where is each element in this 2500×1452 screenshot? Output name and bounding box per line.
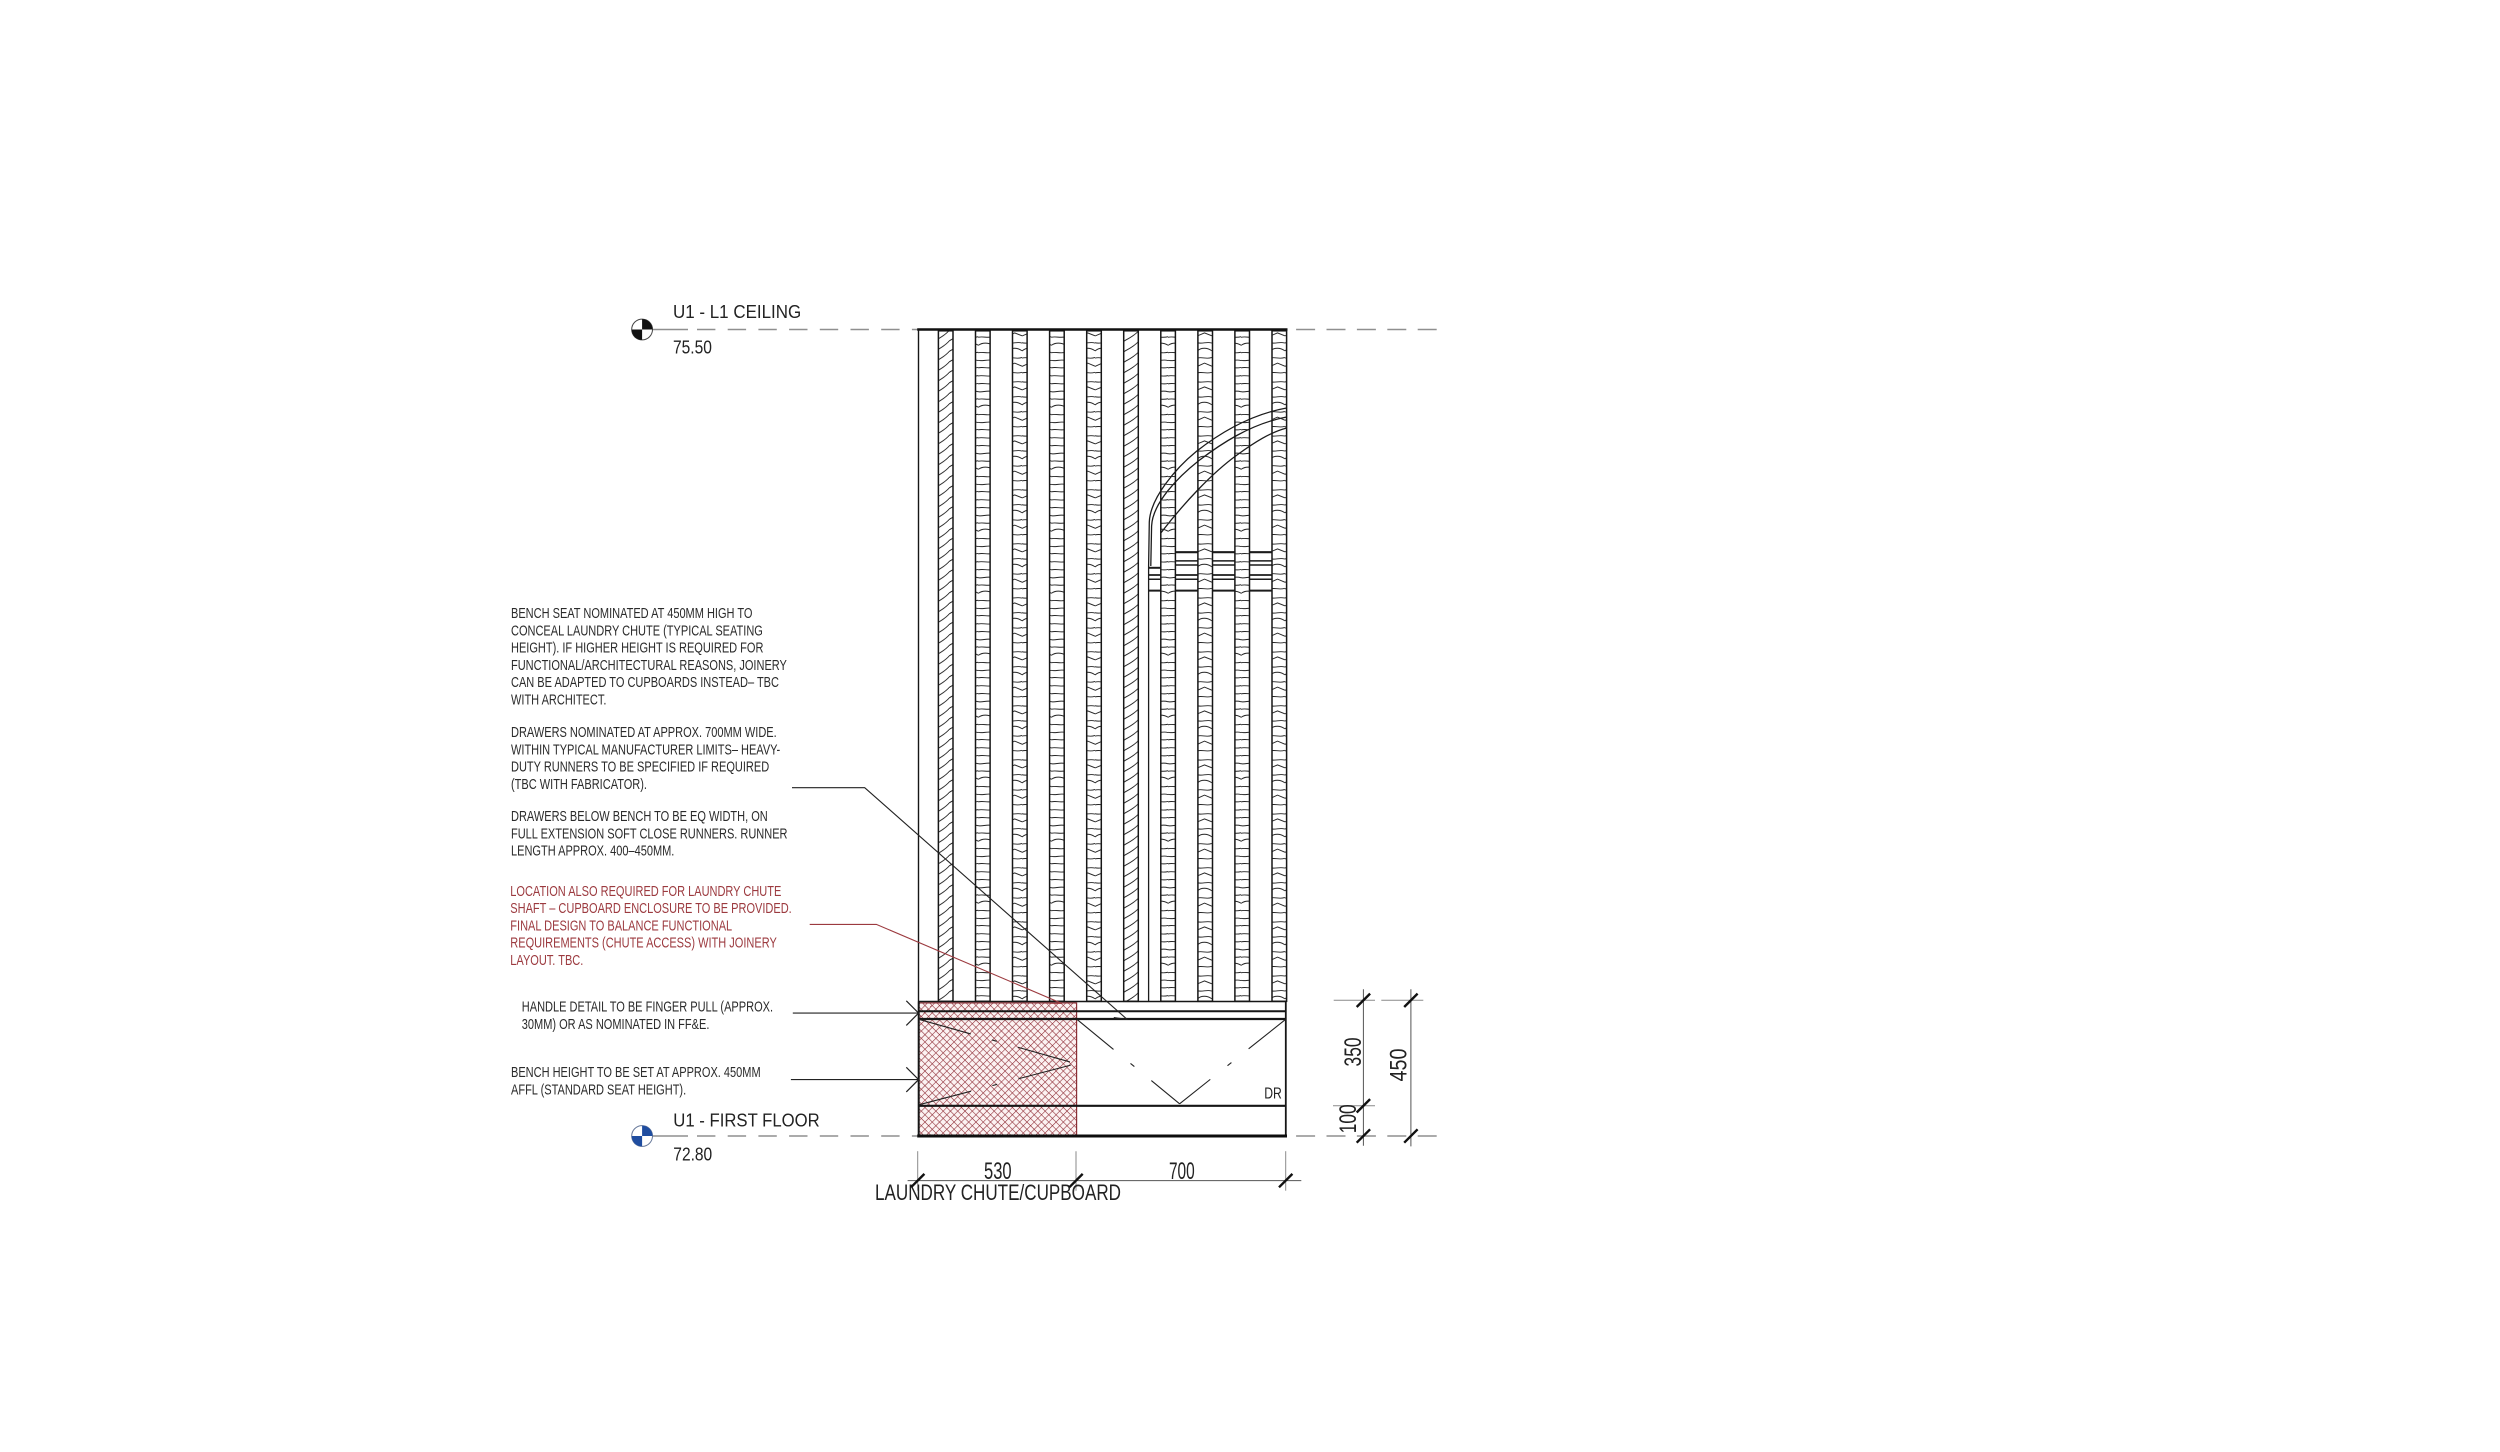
svg-text:LAUNDRY CHUTE/CUPBOARD: LAUNDRY CHUTE/CUPBOARD [875, 1180, 1121, 1205]
svg-text:72.80: 72.80 [673, 1144, 712, 1165]
svg-text:700: 700 [1169, 1158, 1195, 1185]
svg-text:LAYOUT. TBC.: LAYOUT. TBC. [510, 951, 583, 968]
svg-text:WITHIN TYPICAL MANUFACTURER LI: WITHIN TYPICAL MANUFACTURER LIMITS– HEAV… [511, 741, 780, 758]
svg-text:AFFL (STANDARD SEAT HEIGHT).: AFFL (STANDARD SEAT HEIGHT). [511, 1081, 686, 1098]
svg-text:100: 100 [1335, 1104, 1362, 1133]
svg-text:450: 450 [1386, 1049, 1413, 1082]
svg-text:75.50: 75.50 [673, 336, 712, 357]
svg-text:FULL EXTENSION SOFT CLOSE RUNN: FULL EXTENSION SOFT CLOSE RUNNERS. RUNNE… [511, 825, 788, 842]
svg-text:LOCATION ALSO REQUIRED FOR LAU: LOCATION ALSO REQUIRED FOR LAUNDRY CHUTE [510, 882, 781, 899]
svg-text:30MM) OR AS NOMINATED IN FF&E.: 30MM) OR AS NOMINATED IN FF&E. [522, 1015, 710, 1032]
svg-text:HEIGHT). IF HIGHER HEIGHT IS R: HEIGHT). IF HIGHER HEIGHT IS REQUIRED FO… [511, 639, 763, 656]
svg-text:(TBC WITH FABRICATOR).: (TBC WITH FABRICATOR). [511, 775, 647, 792]
svg-text:DRAWERS BELOW BENCH TO BE EQ W: DRAWERS BELOW BENCH TO BE EQ WIDTH, ON [511, 807, 768, 824]
svg-text:BENCH HEIGHT TO BE SET AT APPR: BENCH HEIGHT TO BE SET AT APPROX. 450MM [511, 1063, 761, 1080]
svg-text:CAN BE ADAPTED TO CUPBOARDS IN: CAN BE ADAPTED TO CUPBOARDS INSTEAD– TBC [511, 673, 779, 690]
svg-text:350: 350 [1340, 1038, 1367, 1067]
svg-text:FUNCTIONAL/ARCHITECTURAL REASO: FUNCTIONAL/ARCHITECTURAL REASONS, JOINER… [511, 656, 787, 673]
svg-text:FINAL DESIGN TO BALANCE FUNCTI: FINAL DESIGN TO BALANCE FUNCTIONAL [510, 917, 732, 934]
svg-text:DUTY RUNNERS TO BE SPECIFIED I: DUTY RUNNERS TO BE SPECIFIED IF REQUIRED [511, 758, 769, 775]
svg-text:REQUIREMENTS (CHUTE ACCESS) WI: REQUIREMENTS (CHUTE ACCESS) WITH JOINERY [510, 934, 777, 951]
svg-text:CONCEAL LAUNDRY CHUTE (TYPICAL: CONCEAL LAUNDRY CHUTE (TYPICAL SEATING [511, 622, 763, 639]
svg-text:SHAFT – CUPBOARD ENCLOSURE TO: SHAFT – CUPBOARD ENCLOSURE TO BE PROVIDE… [510, 899, 791, 916]
svg-text:LENGTH APPROX. 400–450MM.: LENGTH APPROX. 400–450MM. [511, 842, 674, 859]
svg-text:BENCH SEAT NOMINATED AT 450MM: BENCH SEAT NOMINATED AT 450MM HIGH TO [511, 604, 752, 621]
svg-text:HANDLE DETAIL TO BE FINGER PUL: HANDLE DETAIL TO BE FINGER PULL (APPROX. [522, 998, 773, 1015]
svg-text:DR: DR [1264, 1086, 1282, 1103]
svg-text:U1 - FIRST FLOOR: U1 - FIRST FLOOR [673, 1109, 819, 1130]
svg-text:DRAWERS NOMINATED AT APPROX. 7: DRAWERS NOMINATED AT APPROX. 700MM WIDE. [511, 723, 777, 740]
svg-text:U1 - L1 CEILING: U1 - L1 CEILING [673, 301, 801, 322]
svg-text:WITH ARCHITECT.: WITH ARCHITECT. [511, 691, 606, 708]
